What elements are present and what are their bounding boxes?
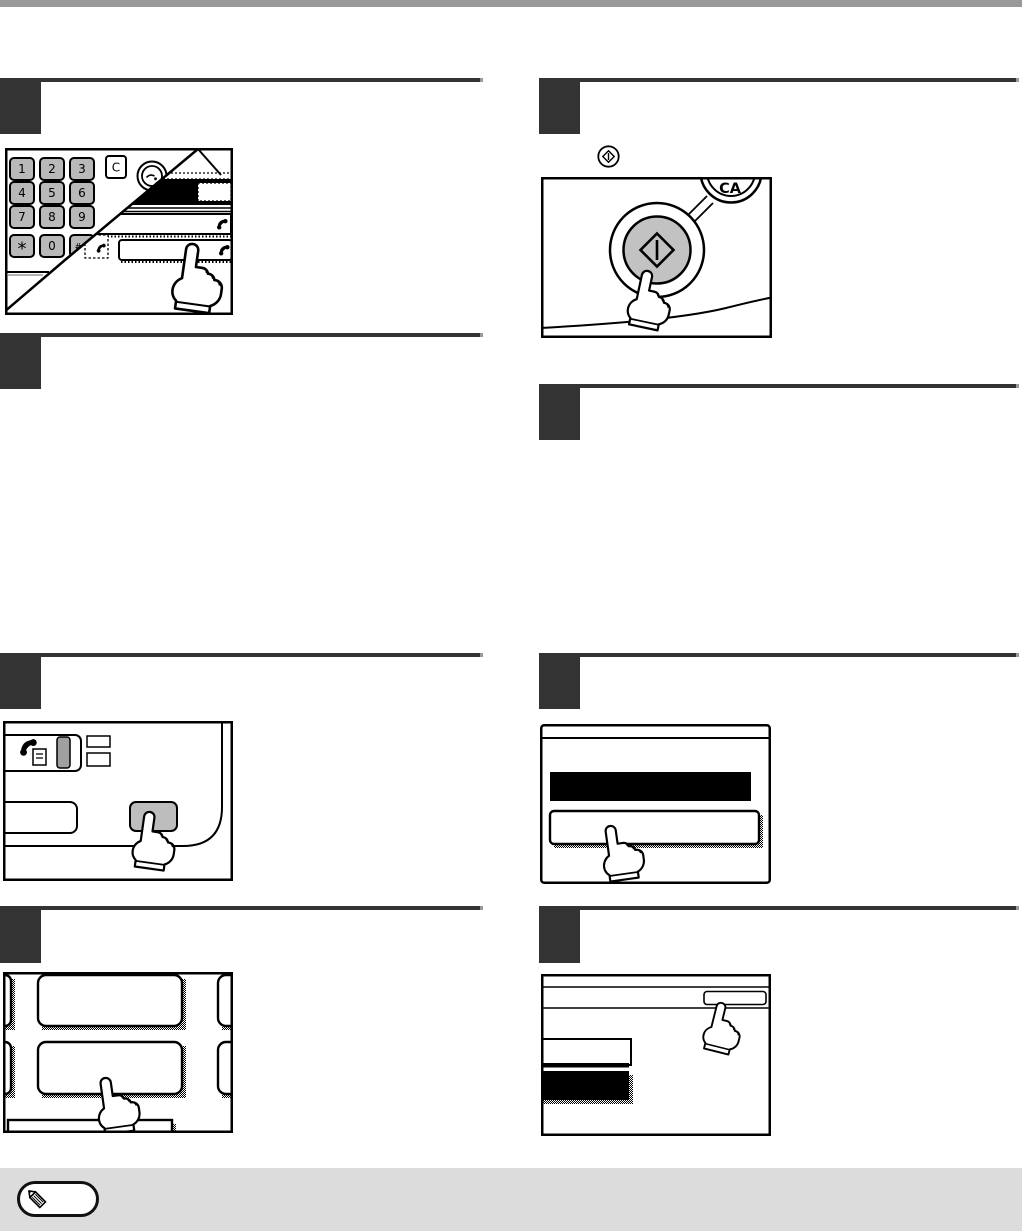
lcd-select-illustration — [540, 724, 771, 884]
corner-touch-button — [704, 992, 766, 1005]
key-6-label: 6 — [78, 186, 86, 200]
touch-key — [550, 811, 759, 844]
step-marker-right-3 — [539, 653, 580, 709]
display-window — [198, 183, 231, 201]
step-rule-left-1 — [0, 78, 483, 82]
manual-page: 1 2 3 4 5 6 7 8 9 * 0 #/P C — [0, 0, 1022, 1231]
key-clear-label: C — [112, 160, 120, 174]
clear-all-key-label: CA — [719, 181, 742, 197]
lcd-confirm-illustration — [541, 974, 771, 1136]
step-rule-left-3 — [0, 653, 483, 657]
touch-screen-keys-illustration — [3, 972, 233, 1133]
start-key-illustration: CA — [541, 177, 772, 338]
key-5-label: 5 — [48, 186, 56, 200]
step-rule-right-4 — [539, 906, 1019, 910]
touch-key-1 — [38, 975, 182, 1026]
key-9-label: 9 — [78, 210, 86, 224]
step-marker-left-2 — [0, 333, 41, 389]
screen-bg — [540, 724, 771, 884]
key-3-label: 3 — [78, 162, 86, 176]
note-band — [0, 1168, 1022, 1231]
key-4-label: 4 — [18, 186, 26, 200]
step-rule-left-4 — [0, 906, 483, 910]
step-rule-right-2 — [539, 384, 1019, 388]
note-pill — [17, 1181, 99, 1217]
key-7-label: 7 — [18, 210, 26, 224]
step-marker-left-3 — [0, 653, 41, 709]
highlighted-row — [550, 772, 751, 801]
step-marker-right-2 — [539, 384, 580, 440]
mode-panel-illustration — [3, 721, 233, 881]
mode-led-bar — [57, 737, 70, 768]
list-row-white — [541, 1039, 631, 1065]
page-header-bar — [0, 0, 1022, 7]
key-2-label: 2 — [48, 162, 56, 176]
left-function-key — [3, 802, 77, 833]
indicator-box-2 — [87, 753, 110, 766]
step-marker-left-4 — [0, 907, 41, 963]
step-marker-left-1 — [0, 78, 41, 134]
step-rule-left-2 — [0, 333, 483, 337]
step-marker-right-1 — [539, 78, 580, 134]
key-1-label: 1 — [18, 162, 26, 176]
start-key-inline-icon — [596, 144, 621, 169]
step-rule-right-3 — [539, 653, 1019, 657]
pencil-icon — [24, 1186, 50, 1212]
speed-dial-key-2 — [119, 240, 232, 260]
step-rule-right-1 — [539, 78, 1019, 82]
keypad-illustration: 1 2 3 4 5 6 7 8 9 * 0 #/P C — [5, 148, 233, 315]
key-8-label: 8 — [48, 210, 56, 224]
start-key — [610, 203, 704, 297]
key-star-label: * — [18, 239, 27, 260]
list-row-black — [541, 1071, 629, 1100]
indicator-box-1 — [87, 736, 110, 747]
list-row-underline — [541, 1063, 629, 1068]
step-marker-right-4 — [539, 907, 580, 963]
key-0-label: 0 — [48, 239, 56, 253]
